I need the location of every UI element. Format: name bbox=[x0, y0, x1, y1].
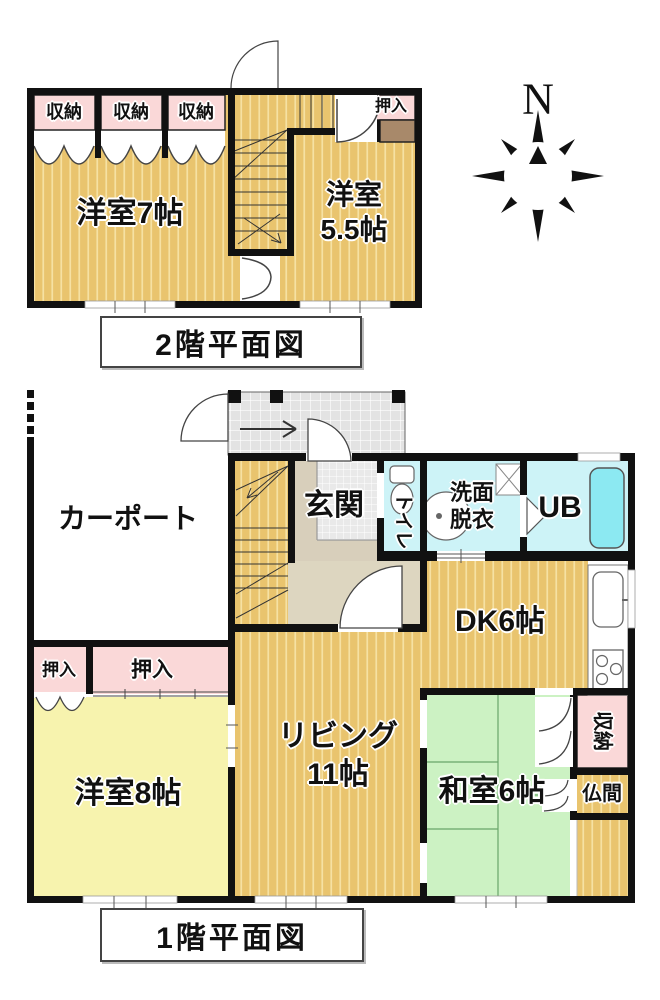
washer-pan bbox=[496, 464, 522, 495]
dk-label: DK6帖 bbox=[455, 607, 545, 637]
room55-label-1: 洋室 bbox=[326, 181, 382, 209]
living-label-2: 11帖 bbox=[307, 760, 369, 790]
floor1-caption-text: 1階平面図 bbox=[156, 913, 308, 957]
washitsu-label: 和室6帖 bbox=[439, 777, 546, 807]
toilet-label: トイレ bbox=[394, 492, 413, 549]
closet-label-3: 収納 bbox=[178, 103, 214, 121]
room7-label: 洋室7帖 bbox=[77, 199, 184, 229]
washroom-label-2: 脱衣 bbox=[450, 509, 494, 531]
floor2-caption: 2階平面図 bbox=[100, 316, 362, 368]
room8-label: 洋室8帖 bbox=[75, 779, 182, 809]
floor2-plan bbox=[27, 41, 422, 313]
unit-bath-label: UB bbox=[538, 493, 581, 523]
floor1-plan bbox=[27, 390, 635, 908]
floorplan-page: 収納 収納 収納 洋室7帖 洋室 5.5帖 押入 N カーポート 玄関 トイレ … bbox=[0, 0, 660, 1000]
compass-north-label: N bbox=[522, 74, 554, 125]
butsuma-label: 仏間 bbox=[582, 784, 622, 804]
room55-label-2: 5.5帖 bbox=[321, 216, 388, 244]
floor2-caption-text: 2階平面図 bbox=[155, 320, 307, 364]
genkan-label: 玄関 bbox=[304, 491, 364, 521]
floor1-caption: 1階平面図 bbox=[100, 908, 364, 962]
carport-label: カーポート bbox=[58, 505, 198, 533]
compass-icon bbox=[472, 110, 604, 242]
washroom-label-1: 洗面 bbox=[450, 482, 494, 504]
oshiire-wide-label: 押入 bbox=[131, 660, 173, 681]
storage-label: 収納 bbox=[592, 711, 612, 751]
closet-label-2: 収納 bbox=[113, 103, 149, 121]
carport-dashed-wall bbox=[27, 390, 34, 434]
oshiire-small-label: 押入 bbox=[42, 662, 76, 679]
living-label-1: リビング bbox=[278, 722, 398, 752]
closet-label-1: 収納 bbox=[46, 103, 82, 121]
bathtub bbox=[590, 468, 624, 548]
oshiire-2f-label: 押入 bbox=[375, 99, 407, 115]
